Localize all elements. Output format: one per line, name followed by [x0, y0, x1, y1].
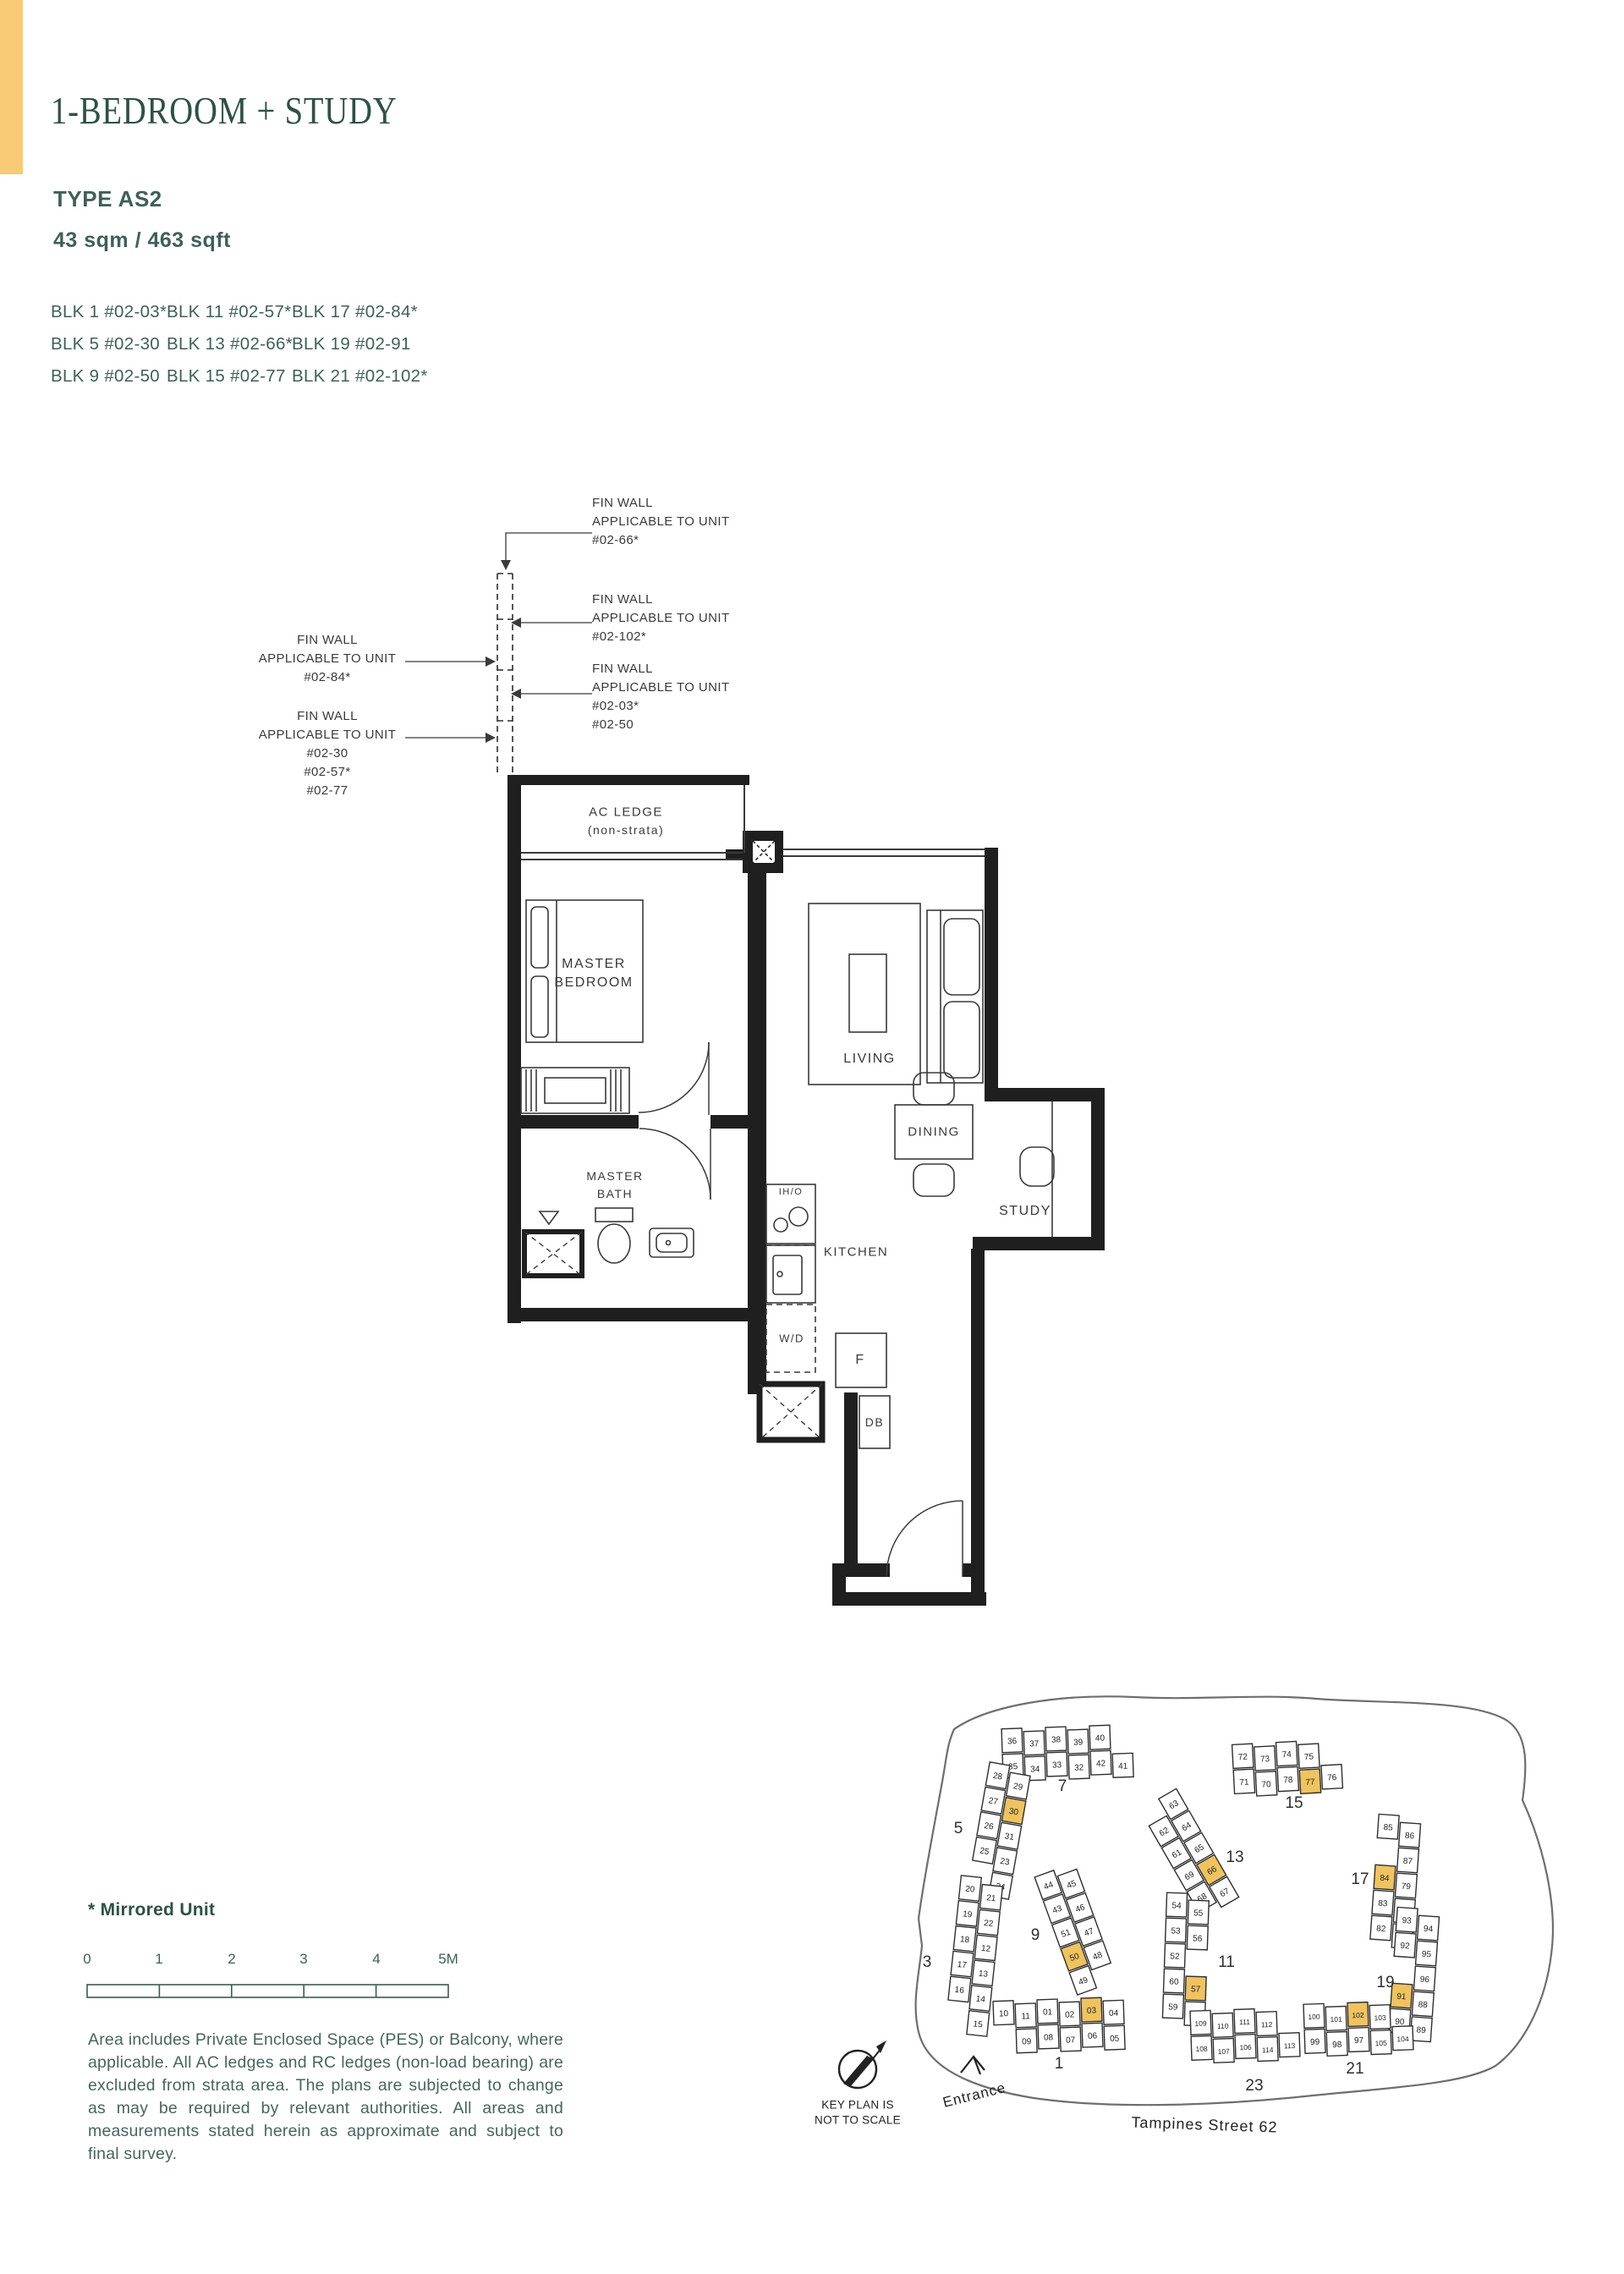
- washer-dryer-label: W/D: [779, 1332, 804, 1345]
- key-plan-block-15: 727374757170787776: [1232, 1739, 1343, 1798]
- mirrored-unit-note: * Mirrored Unit: [88, 1900, 215, 1920]
- svg-text:114: 114: [1262, 2046, 1274, 2054]
- master-bedroom-label-2: BEDROOM: [554, 975, 633, 991]
- key-plan-block-number-5: 5: [954, 1820, 963, 1838]
- key-plan-note-line1: KEY PLAN IS: [821, 2099, 894, 2112]
- floorplan-brochure-page: 1-BEDROOM + STUDY TYPE AS2 43 sqm / 463 …: [0, 0, 1624, 2274]
- svg-text:97: 97: [1354, 2036, 1364, 2046]
- svg-text:56: 56: [1193, 1934, 1203, 1943]
- svg-text:21: 21: [986, 1893, 997, 1903]
- entrance-arrow-icon: [961, 2057, 985, 2074]
- svg-text:70: 70: [1261, 1780, 1271, 1790]
- hatched-boxes: [524, 1232, 822, 1440]
- svg-text:57: 57: [1191, 1985, 1201, 1994]
- svg-text:104: 104: [1396, 2035, 1409, 2043]
- svg-text:77: 77: [1305, 1777, 1315, 1788]
- key-plan-block-7: 3637383940353433324241: [1001, 1724, 1133, 1781]
- svg-text:86: 86: [1405, 1832, 1415, 1842]
- fin-wall-note-03-50: FIN WALLAPPLICABLE TO UNIT#02-03*#02-50: [592, 660, 730, 734]
- key-plan-block-23: 109110111112108107106114113: [1190, 2008, 1300, 2063]
- master-bath-label-1: MASTER: [586, 1169, 643, 1183]
- svg-text:72: 72: [1238, 1752, 1248, 1762]
- svg-text:15: 15: [973, 2019, 984, 2030]
- svg-text:12: 12: [980, 1944, 991, 1954]
- svg-text:73: 73: [1260, 1755, 1270, 1765]
- svg-text:16: 16: [954, 1986, 965, 1996]
- master-bedroom-label-1: MASTER: [562, 957, 626, 972]
- svg-text:103: 103: [1374, 2013, 1386, 2022]
- svg-text:55: 55: [1193, 1909, 1204, 1918]
- ac-ledge-label: AC LEDGE: [589, 805, 663, 820]
- svg-text:41: 41: [1118, 1762, 1128, 1771]
- floor-trap-icon: [540, 1211, 558, 1224]
- key-plan-units: 3637383940353433324241282927302631252324…: [945, 1724, 1440, 2063]
- key-plan-block-number-13: 13: [1226, 1848, 1243, 1867]
- svg-text:101: 101: [1330, 2015, 1342, 2024]
- scale-bar: [87, 1985, 448, 1997]
- svg-text:98: 98: [1332, 2041, 1342, 2050]
- scale-tick-4: 4: [372, 1951, 380, 1968]
- svg-text:52: 52: [1170, 1952, 1180, 1961]
- key-plan-block-number-21: 21: [1346, 2060, 1363, 2079]
- svg-text:60: 60: [1169, 1977, 1179, 1986]
- svg-text:53: 53: [1171, 1926, 1181, 1936]
- svg-text:02: 02: [1065, 2010, 1075, 2019]
- ac-ledge-sub: (non-strata): [588, 823, 664, 837]
- fin-wall-note-66: FIN WALLAPPLICABLE TO UNIT#02-66*: [592, 494, 730, 550]
- toilet: [595, 1208, 633, 1263]
- key-plan-block-13: 636264616569666867: [1139, 1788, 1238, 1918]
- scale-tick-3: 3: [299, 1951, 307, 1968]
- kitchen-sink: [766, 1245, 815, 1303]
- svg-text:82: 82: [1376, 1925, 1386, 1935]
- key-plan: 3637383940353433324241282927302631252324…: [839, 1696, 1553, 2105]
- key-plan-block-19: 939492959691889089: [1388, 1907, 1440, 2041]
- fridge-label: F: [855, 1353, 864, 1368]
- svg-text:88: 88: [1418, 2000, 1428, 2010]
- column-riser-box: [753, 841, 775, 863]
- svg-text:75: 75: [1304, 1752, 1314, 1762]
- disclaimer-text: Area includes Private Enclosed Space (PE…: [88, 2029, 563, 2166]
- svg-text:106: 106: [1239, 2043, 1252, 2052]
- svg-text:01: 01: [1043, 2008, 1053, 2017]
- svg-text:111: 111: [1239, 2018, 1251, 2026]
- svg-text:112: 112: [1261, 2020, 1273, 2029]
- scale-tick-5M: 5M: [438, 1951, 458, 1968]
- key-plan-note-line2: NOT TO SCALE: [815, 2114, 901, 2127]
- key-plan-block-number-15: 15: [1285, 1794, 1303, 1813]
- basin: [650, 1228, 694, 1257]
- svg-text:10: 10: [999, 2009, 1009, 2019]
- svg-text:71: 71: [1239, 1777, 1249, 1788]
- fin-wall-note-102: FIN WALLAPPLICABLE TO UNIT#02-102*: [592, 590, 730, 646]
- key-plan-block-number-7: 7: [1058, 1777, 1067, 1796]
- svg-text:37: 37: [1029, 1739, 1040, 1749]
- living-furniture: [809, 904, 983, 1085]
- svg-text:22: 22: [984, 1919, 995, 1929]
- annotation-leaders: [405, 533, 592, 738]
- svg-text:06: 06: [1088, 2031, 1098, 2041]
- svg-text:14: 14: [975, 1995, 986, 2005]
- key-plan-block-number-17: 17: [1351, 1870, 1369, 1889]
- key-plan-block-number-1: 1: [1055, 2055, 1064, 2074]
- svg-text:78: 78: [1283, 1776, 1293, 1786]
- kitchen-label: KITCHEN: [824, 1245, 888, 1260]
- svg-text:19: 19: [963, 1909, 974, 1920]
- svg-text:109: 109: [1194, 2019, 1207, 2028]
- svg-text:05: 05: [1110, 2035, 1120, 2044]
- svg-text:107: 107: [1217, 2047, 1230, 2056]
- key-plan-block-number-23: 23: [1245, 2077, 1263, 2095]
- key-plan-block-9: 444543465147504849: [1034, 1863, 1117, 1995]
- key-plan-block-number-19: 19: [1376, 1974, 1394, 1992]
- svg-text:110: 110: [1217, 2022, 1229, 2030]
- svg-text:76: 76: [1327, 1773, 1337, 1783]
- svg-text:03: 03: [1087, 2006, 1097, 2015]
- key-plan-block-number-9: 9: [1031, 1926, 1040, 1945]
- svg-text:93: 93: [1402, 1916, 1412, 1926]
- svg-text:42: 42: [1096, 1759, 1106, 1768]
- svg-text:59: 59: [1168, 2002, 1178, 2012]
- svg-text:39: 39: [1073, 1738, 1084, 1747]
- dining-label: DINING: [908, 1125, 960, 1140]
- svg-text:99: 99: [1310, 2038, 1320, 2047]
- annotation-arrows: [486, 560, 521, 743]
- svg-text:54: 54: [1171, 1901, 1182, 1910]
- hob-label: IH/O: [779, 1187, 804, 1197]
- key-plan-block-11: 545553565260575958: [1162, 1892, 1209, 2026]
- living-label: LIVING: [843, 1052, 895, 1067]
- svg-text:09: 09: [1022, 2037, 1032, 2046]
- svg-text:102: 102: [1352, 2011, 1364, 2019]
- north-compass-icon: [839, 2041, 886, 2088]
- svg-text:20: 20: [965, 1884, 976, 1894]
- svg-text:13: 13: [978, 1969, 989, 1980]
- svg-text:84: 84: [1380, 1874, 1390, 1884]
- svg-text:33: 33: [1052, 1760, 1062, 1770]
- svg-text:18: 18: [959, 1935, 970, 1945]
- svg-text:96: 96: [1419, 1975, 1429, 1986]
- svg-text:87: 87: [1402, 1857, 1413, 1867]
- svg-text:94: 94: [1424, 1925, 1434, 1935]
- svg-text:91: 91: [1396, 1992, 1407, 2002]
- svg-text:89: 89: [1416, 2025, 1426, 2035]
- svg-text:83: 83: [1378, 1899, 1388, 1909]
- scale-tick-0: 0: [83, 1951, 91, 1968]
- svg-text:36: 36: [1007, 1737, 1018, 1746]
- svg-text:38: 38: [1051, 1735, 1062, 1744]
- key-plan-block-number-3: 3: [923, 1953, 932, 1972]
- svg-text:105: 105: [1374, 2039, 1387, 2047]
- fin-wall-dashed: [497, 574, 513, 775]
- svg-text:07: 07: [1066, 2035, 1076, 2045]
- svg-text:17: 17: [957, 1960, 968, 1970]
- svg-text:92: 92: [1400, 1942, 1410, 1952]
- svg-text:40: 40: [1095, 1733, 1106, 1743]
- key-plan-block-1: 1011010203040908070605: [993, 1997, 1125, 2053]
- svg-text:100: 100: [1308, 2013, 1320, 2021]
- svg-text:11: 11: [1021, 2012, 1030, 2021]
- svg-text:95: 95: [1421, 1950, 1431, 1960]
- scale-tick-2: 2: [228, 1951, 235, 1968]
- svg-text:04: 04: [1109, 2009, 1119, 2019]
- svg-text:108: 108: [1195, 2045, 1208, 2053]
- master-bath-label-2: BATH: [597, 1187, 633, 1200]
- key-plan-block-number-11: 11: [1218, 1953, 1235, 1972]
- svg-text:32: 32: [1074, 1763, 1084, 1772]
- fin-wall-note-84: FIN WALLAPPLICABLE TO UNIT#02-84*: [250, 631, 405, 687]
- svg-text:74: 74: [1281, 1750, 1292, 1760]
- svg-text:85: 85: [1383, 1823, 1393, 1833]
- scale-tick-1: 1: [155, 1951, 162, 1968]
- wardrobe: [521, 1068, 629, 1113]
- svg-text:08: 08: [1044, 2033, 1054, 2042]
- svg-text:79: 79: [1401, 1882, 1411, 1892]
- db-label: DB: [865, 1415, 884, 1429]
- study-label: STUDY: [999, 1204, 1051, 1219]
- fin-wall-note-30-57-77: FIN WALLAPPLICABLE TO UNIT#02-30#02-57*#…: [250, 707, 405, 800]
- svg-text:113: 113: [1284, 2041, 1296, 2050]
- floor-plan-drawing: 3637383940353433324241282927302631252324…: [0, 0, 1624, 2274]
- svg-text:34: 34: [1030, 1765, 1040, 1774]
